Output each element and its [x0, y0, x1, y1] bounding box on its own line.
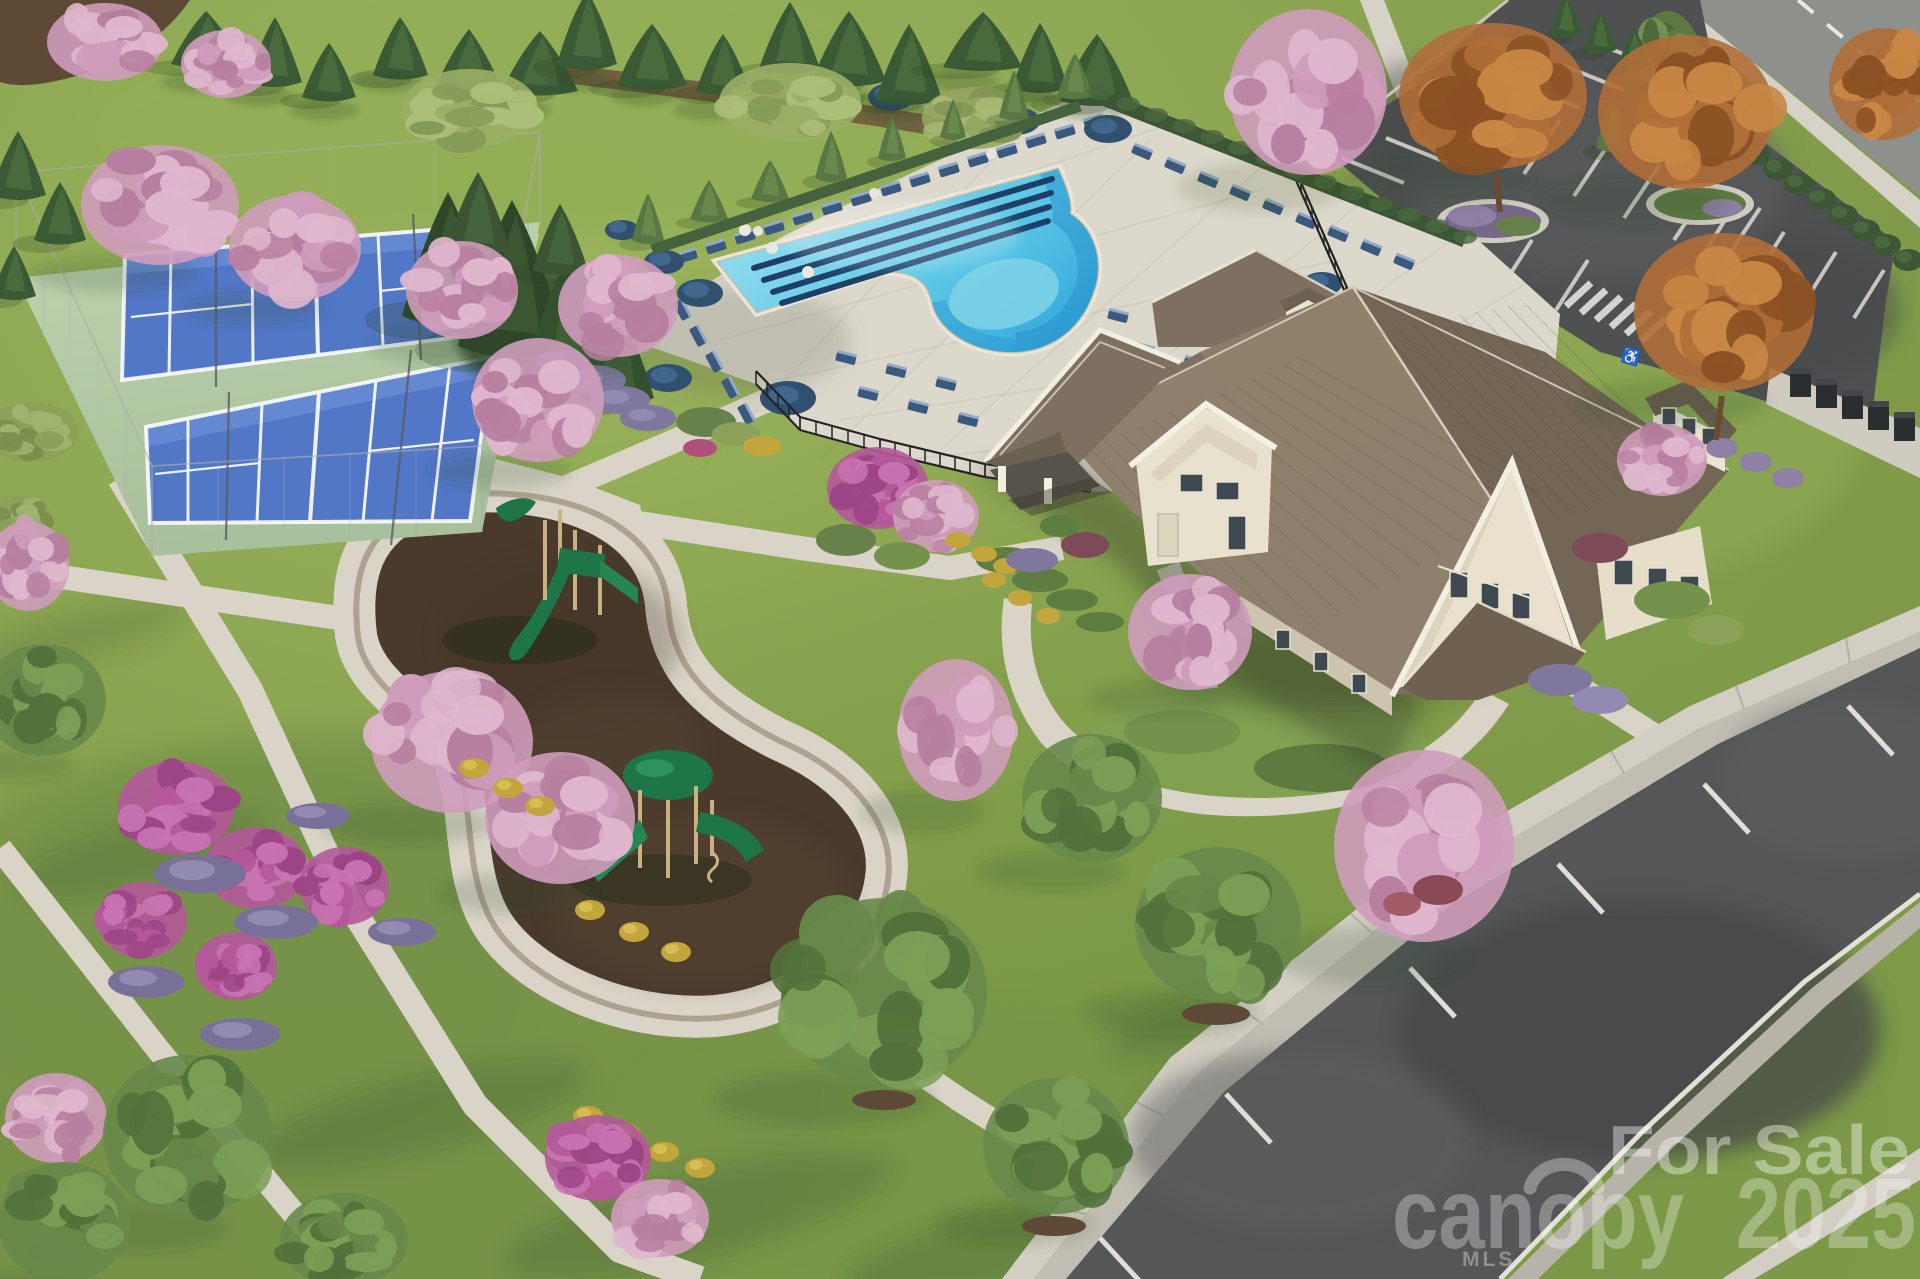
svg-text:MLS: MLS: [1462, 1248, 1515, 1271]
svg-text:2025: 2025: [1736, 1158, 1916, 1270]
